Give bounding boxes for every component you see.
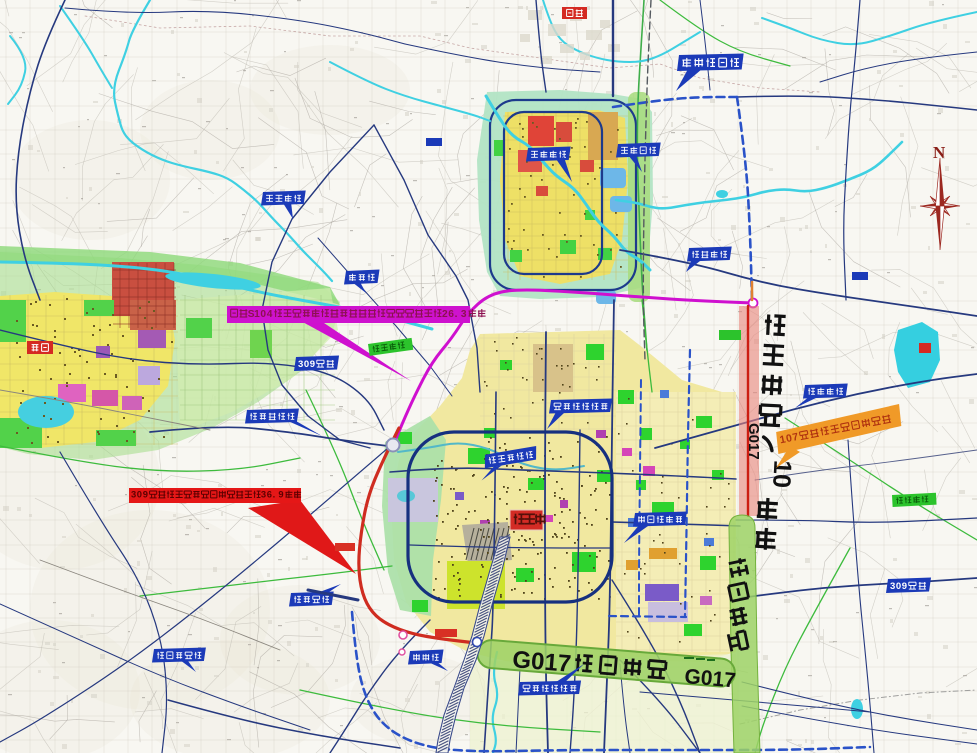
- svg-text:0: 0: [260, 309, 266, 320]
- svg-text:9: 9: [278, 489, 283, 500]
- svg-text:G017: G017: [684, 665, 737, 692]
- svg-text:.: .: [455, 309, 458, 320]
- svg-text:6: 6: [267, 489, 272, 500]
- svg-text:G017: G017: [511, 646, 572, 678]
- svg-text:9: 9: [143, 489, 148, 500]
- svg-text:N: N: [933, 143, 946, 162]
- svg-text:3: 3: [298, 359, 303, 370]
- svg-text:4: 4: [267, 309, 273, 320]
- svg-text:9: 9: [902, 581, 907, 592]
- svg-text:3: 3: [461, 309, 467, 320]
- svg-text:6: 6: [448, 309, 454, 320]
- svg-text:3: 3: [131, 489, 136, 500]
- svg-text:G017: G017: [745, 423, 762, 460]
- svg-text:0: 0: [896, 581, 901, 592]
- svg-text:.: .: [273, 489, 276, 500]
- svg-text:9: 9: [310, 359, 315, 370]
- svg-text:3: 3: [261, 489, 266, 500]
- svg-text:3: 3: [890, 581, 895, 592]
- svg-text:0: 0: [304, 359, 309, 370]
- svg-text:2: 2: [442, 309, 448, 320]
- svg-text:0: 0: [137, 489, 142, 500]
- svg-text:1: 1: [254, 309, 260, 320]
